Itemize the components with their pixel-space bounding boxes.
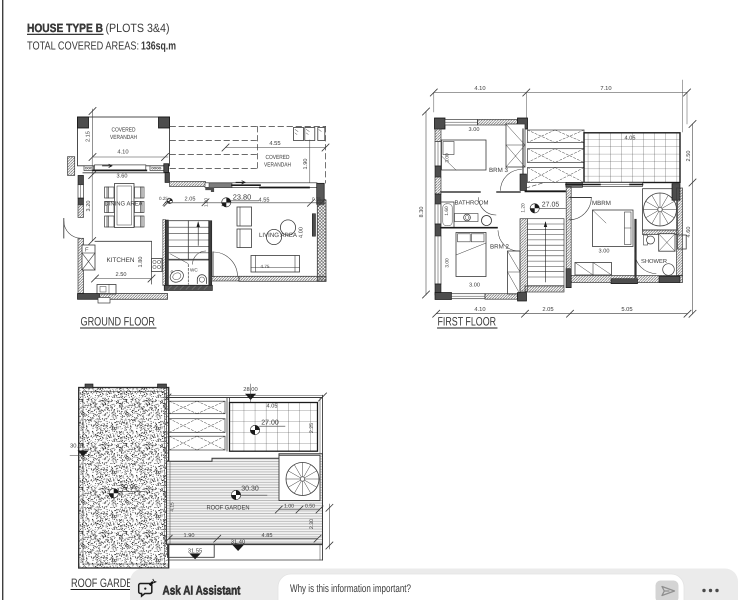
svg-text:F: F <box>85 248 89 254</box>
svg-text:30.30: 30.30 <box>241 486 259 493</box>
svg-text:2.05: 2.05 <box>542 306 553 313</box>
svg-text:4.55: 4.55 <box>269 141 280 147</box>
svg-text:0.25: 0.25 <box>159 196 168 201</box>
svg-text:4.05: 4.05 <box>267 404 278 410</box>
svg-text:COVERED: COVERED <box>112 127 137 134</box>
svg-text:1.00: 1.00 <box>284 504 294 510</box>
svg-text:31.40: 31.40 <box>231 539 246 546</box>
svg-text:4.75: 4.75 <box>261 264 270 269</box>
svg-text:SHOWER: SHOWER <box>641 258 667 265</box>
svg-text:4.85: 4.85 <box>262 533 273 539</box>
svg-text:3.00: 3.00 <box>445 258 451 268</box>
svg-text:TOTAL COVERED AREAS:: TOTAL COVERED AREAS: <box>27 39 139 52</box>
svg-text:5.05: 5.05 <box>621 306 632 313</box>
svg-text:23.80: 23.80 <box>233 193 252 202</box>
svg-text:3.00: 3.00 <box>469 127 480 133</box>
svg-text:30.05: 30.05 <box>120 484 138 491</box>
svg-text:4.00: 4.00 <box>299 227 305 238</box>
svg-text:4.05: 4.05 <box>625 136 636 142</box>
svg-text:27.00: 27.00 <box>261 420 279 427</box>
svg-text:Why is this information import: Why is this information important? <box>290 583 411 595</box>
svg-text:3.00: 3.00 <box>445 153 451 163</box>
svg-text:Ask AI Assistant: Ask AI Assistant <box>163 584 242 598</box>
svg-text:0.50: 0.50 <box>305 504 315 510</box>
svg-text:WC: WC <box>190 267 198 272</box>
svg-text:136sq.m: 136sq.m <box>141 39 176 52</box>
svg-text:BRM 3: BRM 3 <box>489 167 508 174</box>
svg-text:3.00: 3.00 <box>469 283 480 289</box>
svg-text:2.15: 2.15 <box>86 131 92 142</box>
svg-text:KITCHEN: KITCHEN <box>107 257 135 264</box>
svg-text:1.90: 1.90 <box>303 159 309 170</box>
svg-text:1.20: 1.20 <box>521 203 527 213</box>
svg-text:1.90: 1.90 <box>184 533 195 539</box>
svg-text:COVERED: COVERED <box>266 154 291 161</box>
svg-text:2.50: 2.50 <box>116 272 127 278</box>
svg-text:ROOF GARDEN: ROOF GARDEN <box>207 505 250 512</box>
svg-text:3.20: 3.20 <box>86 201 92 212</box>
svg-text:VERANDAH: VERANDAH <box>110 134 137 141</box>
svg-text:4.55: 4.55 <box>259 198 270 204</box>
svg-text:ROOF GARDEN: ROOF GARDEN <box>71 576 139 590</box>
svg-text:BATHROOM: BATHROOM <box>455 200 489 207</box>
svg-text:1.20: 1.20 <box>204 198 209 207</box>
svg-text:7.10: 7.10 <box>600 85 611 92</box>
svg-text:31.55: 31.55 <box>188 547 203 554</box>
svg-text:GROUND FLOOR: GROUND FLOOR <box>81 315 156 329</box>
svg-text:3.00: 3.00 <box>599 249 610 255</box>
svg-text:4.10: 4.10 <box>117 149 128 156</box>
svg-text:8.30: 8.30 <box>419 207 425 218</box>
svg-text:2.30: 2.30 <box>309 519 315 529</box>
svg-text:VERANDAH: VERANDAH <box>264 162 291 169</box>
svg-text:2.05: 2.05 <box>185 196 196 202</box>
svg-text:30.02: 30.02 <box>70 443 85 450</box>
svg-text:4.15: 4.15 <box>170 502 176 512</box>
svg-text:2.25: 2.25 <box>309 423 315 433</box>
svg-text:4.10: 4.10 <box>474 306 485 313</box>
svg-text:(PLOTS 3&4): (PLOTS 3&4) <box>106 21 170 35</box>
svg-text:DINING AREA: DINING AREA <box>105 201 144 208</box>
svg-text:LIVING AREA: LIVING AREA <box>259 232 298 239</box>
svg-text:1.80: 1.80 <box>138 257 144 268</box>
svg-text:FIRST FLOOR: FIRST FLOOR <box>438 315 497 329</box>
svg-text:0.75: 0.75 <box>312 197 321 202</box>
svg-text:27.05: 27.05 <box>542 201 560 208</box>
svg-text:MBRM: MBRM <box>592 200 611 207</box>
svg-text:HOUSE TYPE B: HOUSE TYPE B <box>27 21 103 35</box>
svg-text:1.60: 1.60 <box>444 206 450 216</box>
svg-text:2.50: 2.50 <box>686 151 692 162</box>
svg-text:4.60: 4.60 <box>686 227 692 238</box>
svg-text:3.60: 3.60 <box>117 174 128 180</box>
svg-text:4.10: 4.10 <box>474 85 485 92</box>
